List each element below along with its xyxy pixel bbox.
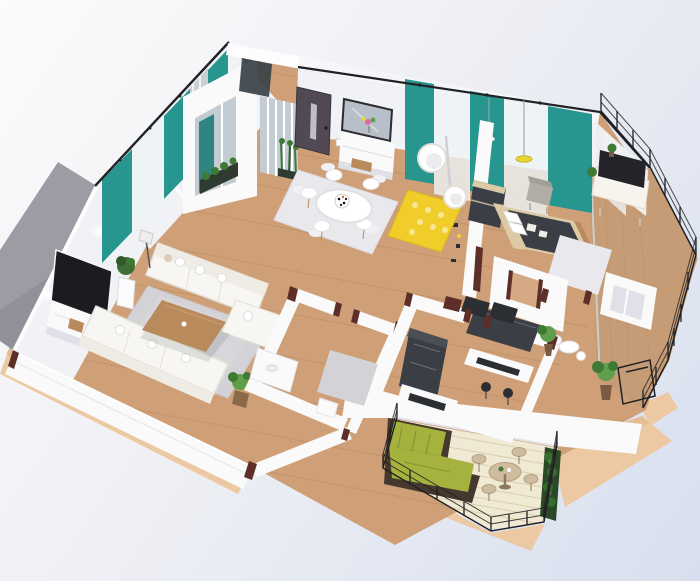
vestibule-skylight bbox=[239, 58, 272, 97]
ne-curtain-3 bbox=[548, 106, 592, 213]
patterned-centerpiece bbox=[335, 194, 349, 208]
front-door bbox=[295, 87, 331, 155]
floor-plan-scene bbox=[0, 0, 700, 581]
door-handle bbox=[324, 126, 327, 129]
sideboard-plant bbox=[587, 167, 597, 177]
entry-mirror-console bbox=[338, 99, 395, 180]
ne-sheer-1 bbox=[434, 84, 470, 201]
table-deco bbox=[182, 322, 187, 327]
door-glass-stripe bbox=[310, 103, 317, 140]
bar-stool-1 bbox=[481, 382, 491, 392]
pedestal-plant bbox=[116, 256, 135, 309]
egg-chair bbox=[444, 186, 466, 208]
apartment-render[interactable] bbox=[0, 0, 700, 581]
yellow-pendant bbox=[516, 156, 532, 162]
table-plant bbox=[499, 467, 504, 472]
bar-stool-2 bbox=[503, 388, 513, 398]
vestibule-glass-doors bbox=[260, 96, 298, 180]
